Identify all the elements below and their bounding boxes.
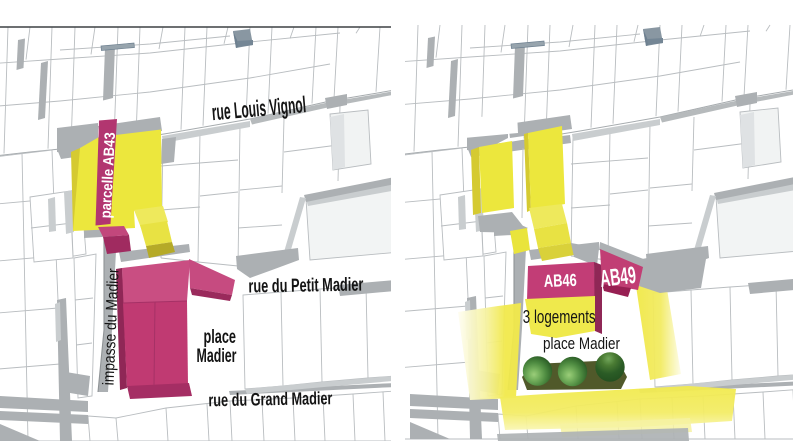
svg-text:AB46: AB46 — [543, 270, 577, 291]
svg-text:AB49: AB49 — [598, 262, 637, 293]
svg-text:rue du Petit Madier: rue du Petit Madier — [248, 274, 364, 297]
svg-text:rue du Grand Madier: rue du Grand Madier — [208, 388, 332, 410]
svg-text:Madier: Madier — [197, 346, 237, 367]
svg-text:place: place — [204, 327, 237, 348]
svg-text:place Madier: place Madier — [543, 335, 620, 353]
svg-text:3 logements: 3 logements — [523, 307, 596, 327]
